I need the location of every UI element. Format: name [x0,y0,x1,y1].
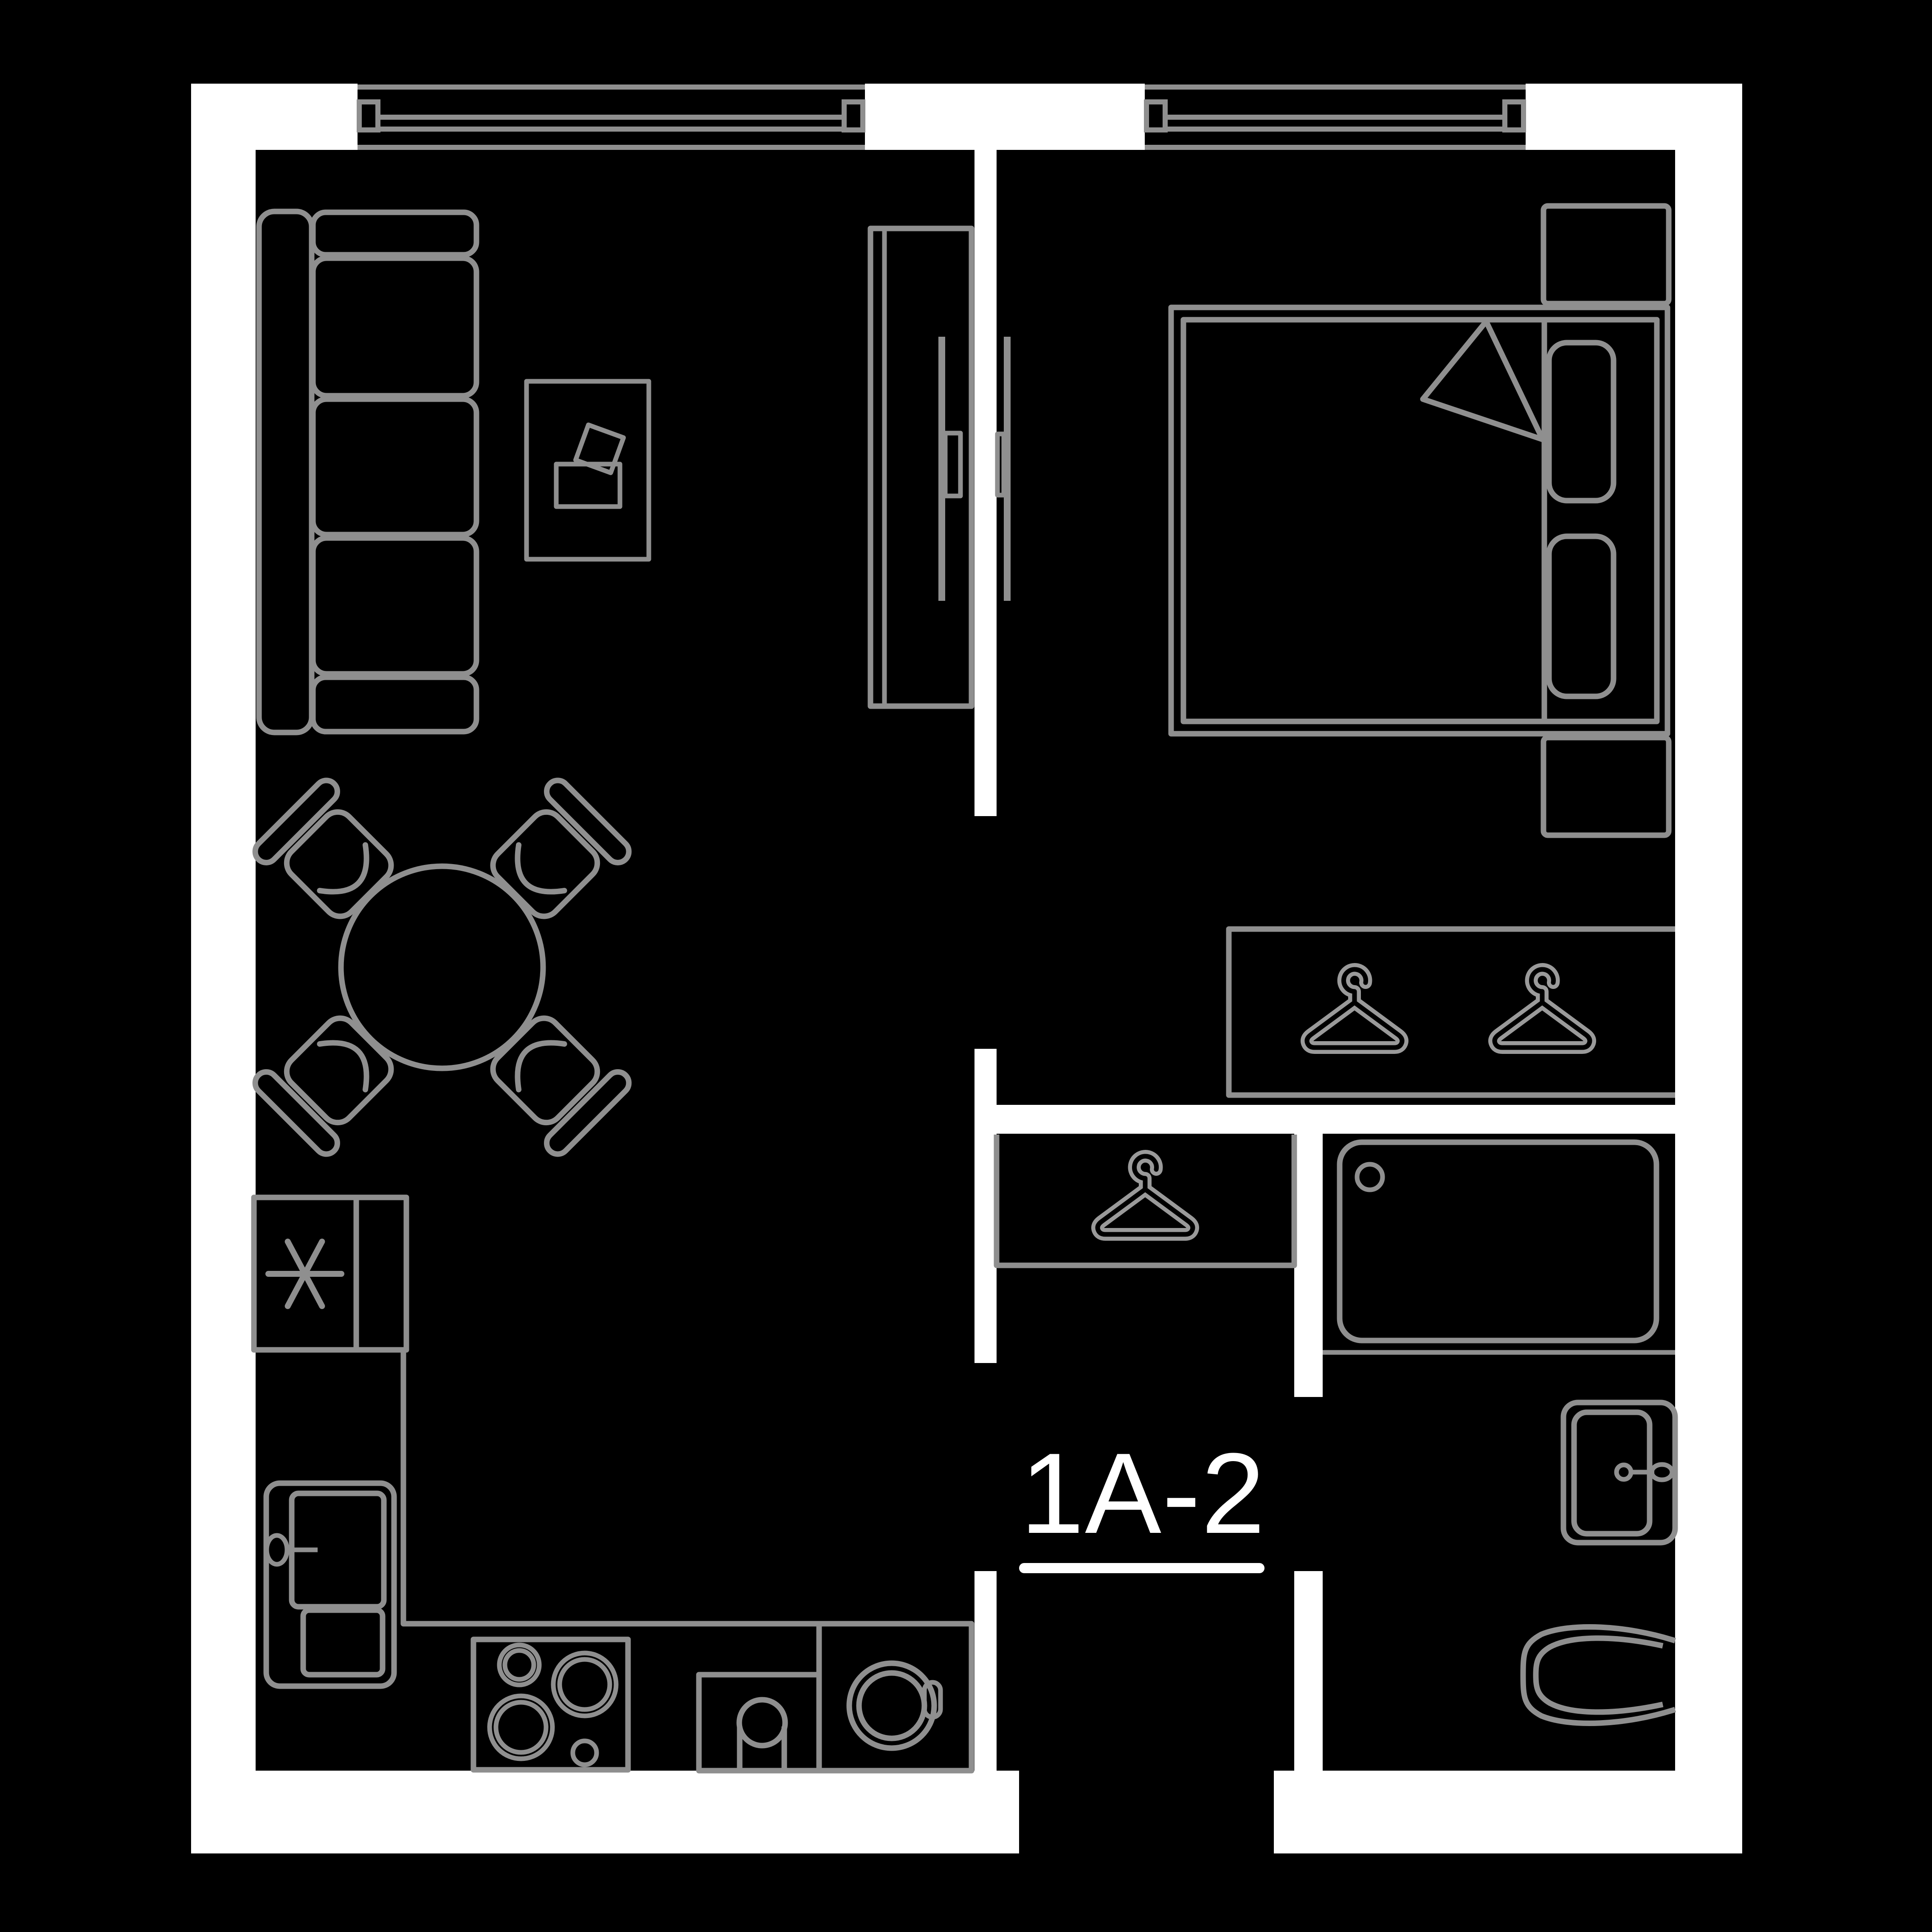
bedroom-wardrobe [1229,929,1675,1095]
blanket-fold [1423,321,1543,439]
window-living-room [358,87,865,147]
wall-bathroom-upper [1294,1134,1323,1397]
tv-bracket [997,434,1004,495]
burner [496,1702,546,1752]
burner [573,1741,597,1765]
unit-label: 1A-2 [1020,1430,1266,1557]
sofa-cushion [313,399,476,535]
sofa-cushion [313,538,476,674]
burner [553,1653,616,1716]
window-end-cap [1146,102,1165,130]
wall-right [1675,84,1742,1853]
burner [560,1659,610,1710]
dining-table [341,866,543,1068]
wall-bottom-left [191,1771,1019,1853]
sofa [259,211,476,732]
hallway: 1A-2 [997,1135,1294,1573]
nightstand-top [1543,206,1669,304]
coffee-table [527,381,649,559]
unit-label-underline [1019,1563,1265,1573]
window-end-cap [1505,102,1524,130]
dining-chair [251,776,407,932]
hanger-icon [1098,1156,1193,1234]
pillow [1549,536,1614,696]
bed-mattress [1183,320,1657,721]
window-end-cap [359,102,378,130]
fridge-handle [267,1535,287,1564]
washer-drum [849,1663,934,1748]
wall-middle-upper [974,149,997,816]
living-room [251,211,972,1771]
faucet-handle [1652,1464,1672,1480]
sofa-backrest [259,211,312,732]
wall-middle-lower [974,1571,997,1771]
double-bed [1171,307,1667,734]
window-end-cap [844,102,863,130]
burner [490,1696,552,1759]
washer-drum [859,1673,924,1738]
sofa-armrest-bottom [313,677,476,732]
refrigerator [266,1483,394,1686]
wall-left [191,84,256,1853]
bathroom [1323,1142,1675,1724]
wall-bedroom-hall-divider [974,1105,1675,1134]
sink-bowl [739,1700,785,1746]
faucet [1617,1465,1631,1479]
nightstand-bottom [1543,738,1669,835]
washing-machine [819,1624,972,1771]
wall-bottom-right [1274,1771,1742,1853]
bed-frame [1171,307,1667,734]
asterisk-icon [268,1242,341,1306]
washbasin [1563,1403,1675,1543]
dining-chair [477,776,634,932]
hallway-closet [997,1135,1294,1265]
tv-bedroom-group [997,337,1011,601]
wall-bathroom-lower [1294,1571,1323,1771]
tv-bracket [945,433,960,496]
dining-chair [251,1003,407,1159]
pillow [1549,343,1614,501]
kitchen-counter-edge [403,1350,819,1624]
wall-top-middle-pier [865,84,1145,150]
walls [191,84,1742,1853]
burner [505,1650,534,1679]
toilet [1523,1627,1675,1723]
hanger-icon [1307,969,1402,1048]
kitchen [254,1197,972,1771]
cooktop [473,1639,628,1770]
freezer-unit [254,1197,406,1350]
kitchen-sink [699,1675,819,1771]
tv-cabinet [870,228,972,706]
dining-set [251,776,633,1158]
sofa-armrest-top [313,212,476,255]
floor-plan: 1A-2 [0,0,1932,1932]
sofa-cushion [313,258,476,396]
unit-label-group: 1A-2 [1019,1430,1266,1573]
bedroom [997,206,1675,1095]
bathtub-drain [1357,1164,1383,1190]
hanger-icon [1495,969,1590,1048]
window-bedroom [1145,87,1526,147]
wall-middle-center [974,1049,997,1363]
dining-chair [477,1003,634,1159]
bathtub [1340,1142,1656,1341]
